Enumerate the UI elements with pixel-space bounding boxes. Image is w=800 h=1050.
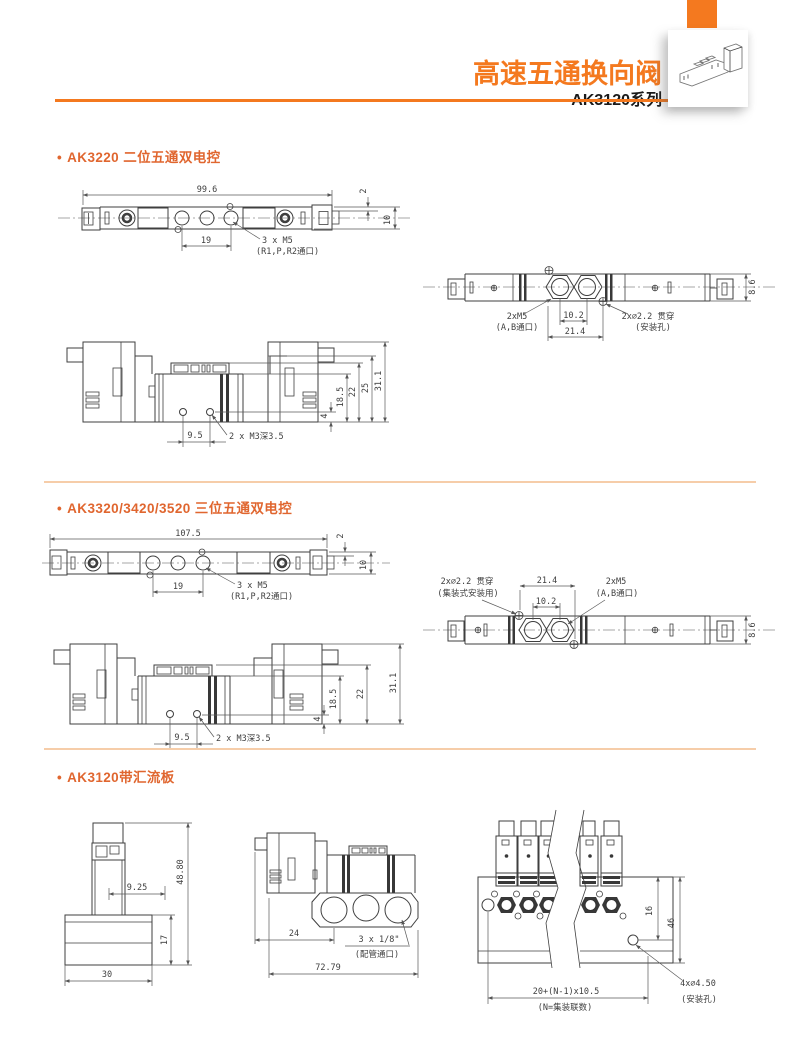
section-divider: [44, 748, 756, 750]
holes-note: 4x∅4.50: [680, 979, 716, 989]
dim-height: 8.6: [748, 622, 758, 637]
dim-inner: 10.2: [536, 597, 556, 607]
dim-spacing: 19: [173, 582, 183, 592]
valve-outline: [58, 204, 411, 233]
s3-manifold-side-drawing: 24 3 x 1/8" (配管通口) 72.79: [228, 818, 443, 990]
ports-note-sub: (A,B通口): [596, 588, 639, 599]
dim-offset: 9.25: [127, 883, 147, 893]
s1-side-view-drawing: 99.6 19 3 x M5 (R1,P,R2通口) 2 10: [55, 175, 415, 270]
dim-base-h: 17: [160, 935, 170, 945]
s1-front-view-drawing: 18.5 22 25 31.1 4 9.5 2 x M3深3.5: [55, 330, 400, 460]
s3-manifold-top-drawing: 16 46 20+(N-1)x10.5 (N=集装联数) 4x∅4.50 (安装…: [468, 808, 770, 1026]
s2-side-view-drawing: 107.5 19 3 x M5 (R1,P,R2通口) 2 10: [40, 520, 400, 620]
section-heading-ak3220: •AK3220 二位五通双电控: [57, 146, 221, 166]
dim-d4: 31.1: [374, 371, 384, 391]
dim-d3: 25: [361, 383, 371, 393]
dim-d1: 18.5: [329, 689, 339, 709]
ports-note: 2xM5: [507, 312, 527, 322]
dim-overall: 99.6: [197, 185, 217, 195]
dim-offset: 24: [289, 929, 299, 939]
dim-d2: 22: [348, 387, 358, 397]
s1-top-view-drawing: 10.2 21.4 2xM5 (A,B通口) 2x∅2.2 贯穿 (安装孔) 8…: [420, 258, 780, 363]
valve-outline: [54, 644, 338, 724]
holes-note-sub: (安装孔): [681, 994, 717, 1005]
thread-note: 2 x M3深3.5: [216, 734, 271, 744]
ports-note-sub: (A,B通口): [496, 322, 539, 333]
dim-spacing: 19: [201, 236, 211, 246]
manifold-right-outline: [580, 821, 673, 963]
dimensions: [488, 877, 685, 1004]
break-gap: [546, 810, 586, 968]
valve-outline: [423, 612, 776, 649]
section-heading-text: AK3220 二位五通双电控: [67, 150, 220, 165]
s3-end-view-drawing: 48.80 9.25 17 30: [55, 808, 205, 993]
section-heading-text: AK3120带汇流板: [67, 770, 175, 785]
section-heading-text: AK3320/3420/3520 三位五通双电控: [67, 501, 292, 516]
dim-overall: 72.79: [315, 963, 341, 973]
dim-height: 8.6: [748, 279, 758, 294]
bullet: •: [57, 501, 62, 516]
datasheet-page: 高速五通换向阀 AK3120系列 •AK3220 二位五通双电控: [0, 0, 800, 1050]
holes-note-sub: (集装式安装用): [437, 588, 498, 599]
section-divider: [44, 481, 756, 483]
dim-d1: 18.5: [336, 387, 346, 407]
section-heading-ak3120: •AK3120带汇流板: [57, 766, 175, 786]
s2-front-view-drawing: 18.5 22 31.1 4 9.5 2 x M3深3.5: [40, 632, 410, 756]
dim-height: 10: [359, 560, 369, 570]
dim-spacing: 9.5: [174, 733, 189, 743]
dim-base: 4: [320, 413, 330, 418]
dim-base: 4: [313, 716, 323, 721]
product-isometric-drawing: [668, 30, 748, 107]
dim-pitch: 20+(N-1)x10.5: [533, 987, 600, 997]
header-rule: [55, 99, 748, 102]
dim-inner: 10.2: [563, 311, 583, 321]
dimensions: [65, 823, 192, 986]
dim-d4: 31.1: [389, 673, 399, 693]
valve-outline: [67, 342, 334, 422]
section-heading-ak3320: •AK3320/3420/3520 三位五通双电控: [57, 497, 292, 517]
s2-top-view-drawing: 2x∅2.2 贯穿 (集装式安装用) 21.4 10.2 2xM5 (A,B通口…: [420, 563, 780, 675]
dim-d2: 22: [356, 689, 366, 699]
bullet: •: [57, 150, 62, 165]
page-subtitle: AK3120系列: [571, 86, 662, 110]
port-note-sub: (R1,P,R2通口): [256, 246, 319, 257]
valve-outline: [423, 267, 776, 306]
dim-46: 46: [667, 918, 677, 928]
dim-outer: 21.4: [565, 327, 585, 337]
dim-pitch-sub: (N=集装联数): [538, 1002, 592, 1013]
dim-overall: 107.5: [175, 529, 201, 539]
port-note: 3 x M5: [237, 581, 268, 591]
dim-16: 16: [645, 906, 655, 916]
corner-tab: [687, 0, 717, 28]
pipe-note: 3 x 1/8": [359, 935, 400, 945]
thread-note: 2 x M3深3.5: [229, 432, 284, 442]
dim-edge: 2: [359, 188, 369, 193]
holes-note: 2x∅2.2 贯穿: [622, 311, 675, 322]
dimensions: [154, 644, 404, 749]
dim-base-w: 30: [102, 970, 112, 980]
dim-height: 10: [383, 215, 393, 225]
dim-height: 48.80: [176, 859, 186, 885]
port-note-sub: (R1,P,R2通口): [230, 591, 293, 602]
product-thumbnail: [668, 30, 748, 107]
valve-outline: [255, 833, 418, 927]
bullet: •: [57, 770, 62, 785]
dim-edge: 2: [336, 533, 346, 538]
dim-spacing: 9.5: [187, 431, 202, 441]
product-outline: [680, 44, 742, 86]
ports-note: 2xM5: [606, 577, 626, 587]
dim-outer: 21.4: [537, 576, 557, 586]
holes-note-sub: (安装孔): [635, 322, 671, 333]
port-note: 3 x M5: [262, 236, 293, 246]
pipe-note-sub: (配管通口): [355, 949, 399, 960]
holes-note: 2x∅2.2 贯穿: [441, 576, 494, 587]
